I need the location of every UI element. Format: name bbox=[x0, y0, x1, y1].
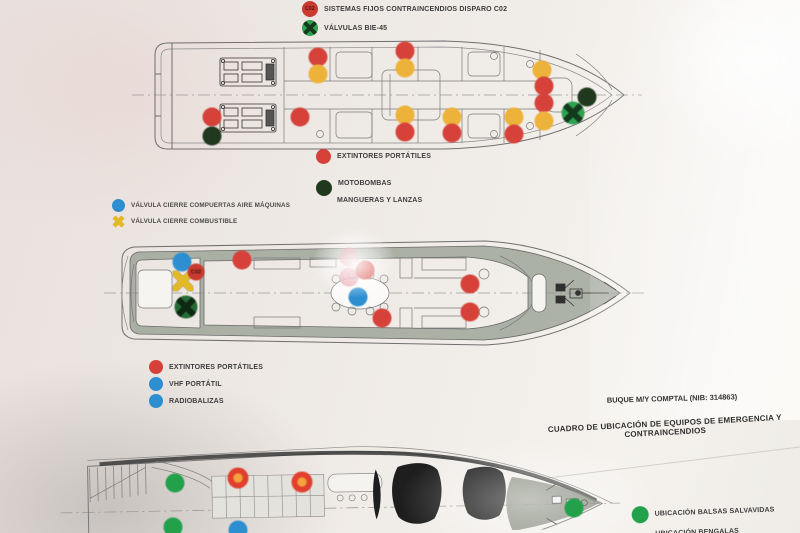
legend-liferaft: UBICACIÓN BALSAS SALVAVIDASUBICACIÓN BEN… bbox=[631, 502, 775, 533]
legend-label: UBICACIÓN BENGALAS bbox=[655, 528, 739, 533]
legend-label: UBICACIÓN BALSAS SALVAVIDAS bbox=[655, 507, 775, 518]
legend-label: MOTOBOMBAS bbox=[338, 180, 391, 187]
legend-item: EXTINTORES PORTÁTILES bbox=[149, 360, 263, 374]
greenx-icon bbox=[302, 20, 318, 36]
deck-plan-sun bbox=[59, 439, 620, 533]
legend-fixed-systems: C02SISTEMAS FIJOS CONTRAINCENDIOS DISPAR… bbox=[302, 1, 507, 36]
legend-label: EXTINTORES PORTÁTILES bbox=[337, 153, 431, 160]
red-icon bbox=[149, 360, 163, 374]
legend-label: EXTINTORES PORTÁTILES bbox=[169, 364, 263, 371]
legend-item: VHF PORTÁTIL bbox=[149, 377, 263, 391]
legend-item: VÁLVULA CIERRE COMBUSTIBLE bbox=[112, 215, 290, 228]
legend-label: VÁLVULA CIERRE COMPUERTAS AIRE MÁQUINAS bbox=[131, 202, 290, 209]
legend-item: VÁLVULAS BIE-45 bbox=[302, 20, 507, 36]
vessel-name: BUQUE M/Y COMPTAL (NIB: 314863) bbox=[552, 391, 792, 406]
blue-icon bbox=[149, 377, 163, 391]
legend-label: MANGUERAS Y LANZAS bbox=[337, 197, 422, 204]
blue-icon bbox=[112, 199, 125, 212]
sunpad-drawings bbox=[373, 462, 507, 525]
legend-label: SISTEMAS FIJOS CONTRAINCENDIOS DISPARO C… bbox=[324, 6, 507, 13]
plan-title: CUADRO DE UBICACIÓN DE EQUIPOS DE EMERGE… bbox=[520, 411, 800, 444]
legend-valves: VÁLVULA CIERRE COMPUERTAS AIRE MÁQUINASV… bbox=[112, 199, 290, 228]
legend-fire-equipment: EXTINTORES PORTÁTILESMOTOBOMBASMANGUERAS… bbox=[316, 149, 431, 208]
co2-icon: C02 bbox=[302, 1, 318, 17]
blue-icon bbox=[149, 394, 163, 408]
legend-label: RADIOBALIZAS bbox=[169, 398, 224, 405]
deck-plan-lower bbox=[132, 34, 642, 156]
red-icon bbox=[316, 149, 331, 164]
legend-item: C02SISTEMAS FIJOS CONTRAINCENDIOS DISPAR… bbox=[302, 1, 507, 17]
legend-item: UBICACIÓN BALSAS SALVAVIDAS bbox=[631, 502, 774, 524]
legend-label: VÁLVULA CIERRE COMBUSTIBLE bbox=[131, 218, 237, 225]
yellowx-icon bbox=[112, 215, 125, 228]
legend-item: RADIOBALIZAS bbox=[149, 394, 263, 408]
photo-glare-corner bbox=[640, 0, 800, 160]
legend-item: MOTOBOMBAS bbox=[316, 175, 431, 191]
legend-radio-equipment: EXTINTORES PORTÁTILESVHF PORTÁTILRADIOBA… bbox=[149, 360, 263, 408]
green-icon bbox=[631, 506, 649, 524]
legend-item: VÁLVULA CIERRE COMPUERTAS AIRE MÁQUINAS bbox=[112, 199, 290, 212]
legend-spacer bbox=[316, 193, 331, 208]
legend-item: EXTINTORES PORTÁTILES bbox=[316, 149, 431, 164]
legend-label: VHF PORTÁTIL bbox=[169, 381, 222, 388]
legend-label: VÁLVULAS BIE-45 bbox=[324, 25, 387, 32]
deck-plan-main bbox=[104, 234, 644, 352]
photo-of-yacht-safety-plan: C02 C02SISTEMAS FIJOS CONTRAINCENDIOS DI… bbox=[0, 0, 800, 533]
stern-railing bbox=[90, 460, 219, 502]
skylight-grid bbox=[212, 474, 325, 518]
legend-item: MANGUERAS Y LANZAS bbox=[316, 193, 431, 208]
legend-item: UBICACIÓN BENGALAS bbox=[632, 522, 775, 533]
legend-spacer bbox=[632, 526, 650, 533]
